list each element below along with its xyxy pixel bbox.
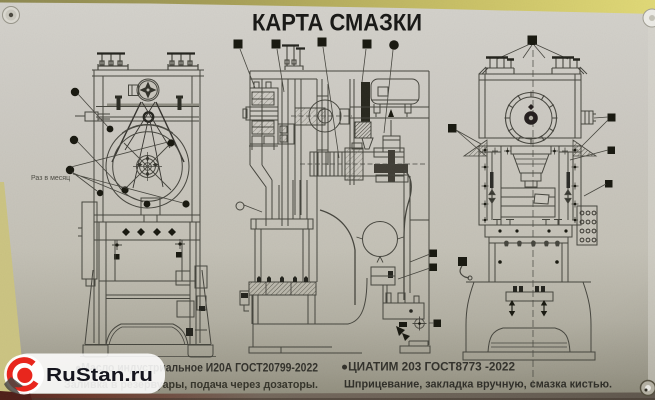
- svg-text:RuStan.ru: RuStan.ru: [46, 365, 153, 385]
